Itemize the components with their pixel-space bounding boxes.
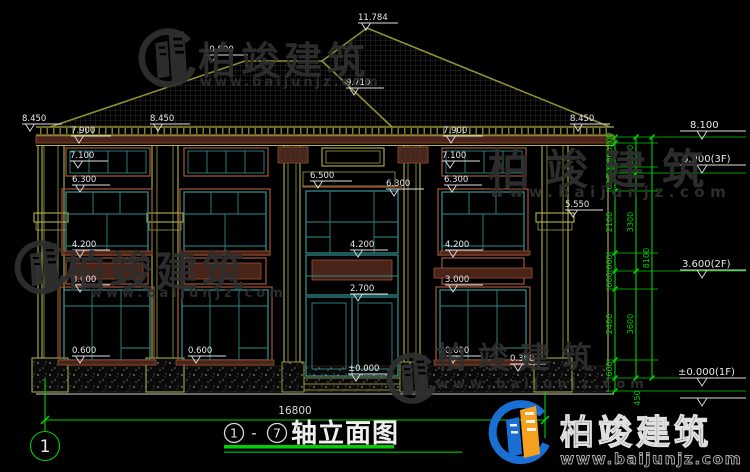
level-mark-1f: ±0.000(1F) (678, 367, 746, 386)
svg-text:7.100: 7.100 (70, 151, 94, 161)
title-underline-thick (224, 445, 394, 449)
svg-text:600: 600 (605, 272, 614, 287)
capital (34, 213, 68, 222)
brand-logo-icon (493, 404, 546, 460)
title-separator: - (251, 424, 256, 442)
svg-text:柏竣建筑: 柏竣建筑 (436, 341, 604, 376)
svg-text:±0.000(1F): ±0.000(1F) (678, 367, 735, 378)
svg-text:600: 600 (605, 254, 614, 269)
frieze-band (36, 136, 614, 143)
svg-text:8.100: 8.100 (690, 120, 719, 131)
svg-text:4.200: 4.200 (350, 240, 374, 250)
level-mark: 2.700 (350, 284, 388, 301)
svg-text:5.550: 5.550 (565, 200, 589, 210)
logo-tower-blue (506, 417, 522, 457)
svg-text:4.200: 4.200 (445, 240, 469, 250)
svg-text:0.600: 0.600 (72, 346, 96, 356)
strip-window-3f (184, 148, 268, 176)
svg-text:1: 1 (230, 426, 238, 441)
sill-1f (58, 360, 156, 365)
overall-width-dimension: 16800 (278, 405, 311, 417)
svg-text:6.300: 6.300 (444, 175, 468, 185)
drawing-title: 1 - 7 轴立面图 (224, 418, 462, 453)
svg-text:3300: 3300 (626, 212, 635, 232)
elevation-drawing: 8.450 10.800 11.784 9.710 8.450 8.450 7.… (0, 0, 750, 472)
svg-text:450: 450 (633, 390, 642, 405)
svg-text:8.450: 8.450 (22, 114, 46, 124)
level-mark: 5.550 (565, 200, 603, 217)
brand-logo-name: 柏竣建筑 (560, 413, 712, 453)
window-2f (180, 189, 270, 255)
svg-text:11.784: 11.784 (358, 13, 388, 23)
svg-text:3.000: 3.000 (445, 275, 469, 285)
svg-text:2400: 2400 (605, 314, 614, 334)
cad-canvas: 8.450 10.800 11.784 9.710 8.450 8.450 7.… (0, 0, 750, 472)
pedestal (282, 362, 304, 392)
svg-text:3.600(2F): 3.600(2F) (682, 259, 731, 270)
svg-text:±0.000: ±0.000 (348, 364, 379, 374)
level-mark: 11.784 (358, 13, 398, 30)
watermark-logo-icon (18, 243, 64, 291)
svg-text:600: 600 (605, 361, 614, 376)
brand-logo: 柏竣建筑 www.baijunjz.com (493, 404, 743, 468)
level-mark: 8.450 (570, 114, 610, 131)
sill-1f (176, 360, 274, 365)
svg-text:www.baijunjz.com: www.baijunjz.com (90, 286, 287, 301)
svg-text:2100: 2100 (605, 212, 614, 232)
svg-text:2.700: 2.700 (350, 284, 374, 294)
svg-text:8.450: 8.450 (150, 114, 174, 124)
door-leaf-left (312, 303, 346, 369)
chain-outer-label: 8100 (642, 248, 651, 268)
svg-text:6.300: 6.300 (72, 175, 96, 185)
title-underline-thin (224, 452, 462, 453)
axis-bubble-1-label: 1 (40, 437, 51, 457)
door-leaf-right (358, 303, 392, 369)
svg-text:www.baijunjz.com: www.baijunjz.com (490, 183, 731, 201)
svg-text:7: 7 (273, 426, 281, 441)
level-mark: 7.100 (442, 151, 480, 168)
level-mark: 8.450 (22, 114, 62, 131)
svg-text:7.900: 7.900 (71, 126, 95, 136)
svg-text:7.100: 7.100 (442, 151, 466, 161)
svg-text:0.600: 0.600 (188, 346, 212, 356)
watermark-top-right: 柏竣建筑 www.baijunjz.com (488, 145, 731, 201)
level-mark: 6.300 (386, 179, 424, 196)
watermark-logo-icon (142, 31, 193, 84)
level-mark-roof: 8.100 (680, 120, 746, 139)
brand-logo-site: www.baijunjz.com (560, 450, 742, 468)
svg-text:8.450: 8.450 (570, 114, 594, 124)
watermark-top-center: 柏竣建筑 www.baijunjz.com (142, 31, 381, 90)
svg-text:6.500: 6.500 (310, 171, 334, 181)
level-mark-ground (680, 398, 746, 406)
title-text: 轴立面图 (291, 418, 399, 449)
svg-text:7.900: 7.900 (443, 126, 467, 136)
svg-text:3600: 3600 (626, 314, 635, 334)
entrance-pilaster-left (278, 146, 308, 375)
sill-2f (440, 251, 530, 255)
cornice-band (36, 127, 614, 146)
svg-text:www.baijunjz.com: www.baijunjz.com (436, 377, 649, 392)
svg-text:www.baijunjz.com: www.baijunjz.com (200, 75, 381, 90)
level-mark-2f: 3.600(2F) (680, 259, 746, 278)
svg-text:6.300: 6.300 (386, 179, 410, 189)
level-mark: 6.500 (310, 171, 352, 188)
